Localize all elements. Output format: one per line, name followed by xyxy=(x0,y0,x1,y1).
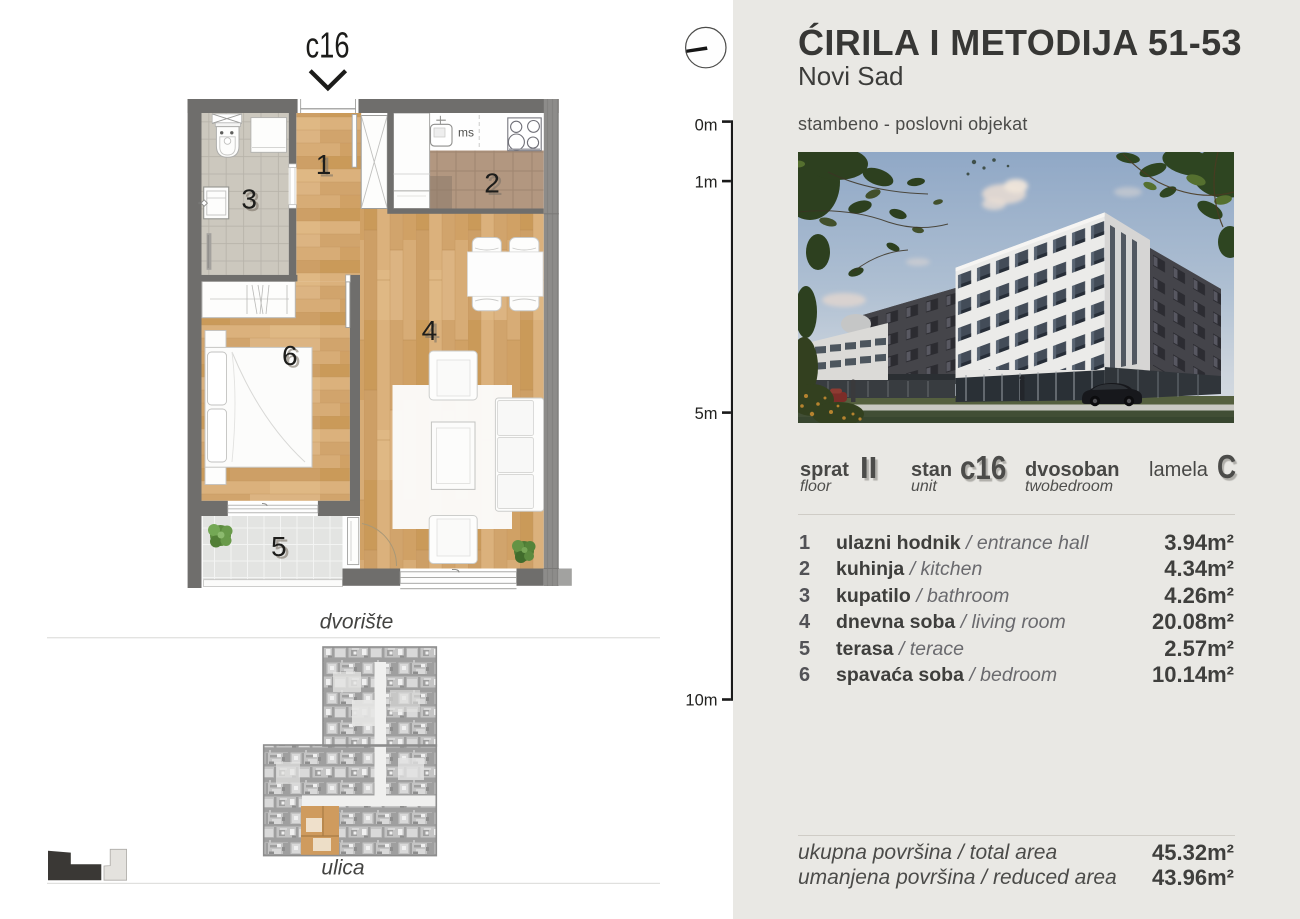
svg-text:5m: 5m xyxy=(695,405,718,423)
svg-text:c16: c16 xyxy=(306,25,350,66)
svg-text:6: 6 xyxy=(282,340,298,371)
svg-text:5: 5 xyxy=(271,531,287,562)
svg-text:0m: 0m xyxy=(695,117,718,135)
svg-text:1m: 1m xyxy=(695,174,718,192)
svg-text:ms: ms xyxy=(458,126,474,140)
svg-text:dvorište: dvorište xyxy=(320,611,394,634)
svg-text:10m: 10m xyxy=(685,692,717,710)
svg-text:2: 2 xyxy=(484,168,500,199)
svg-text:4: 4 xyxy=(422,315,438,346)
svg-text:1: 1 xyxy=(316,149,332,180)
svg-text:3: 3 xyxy=(241,183,257,214)
svg-text:ulica: ulica xyxy=(321,857,364,880)
